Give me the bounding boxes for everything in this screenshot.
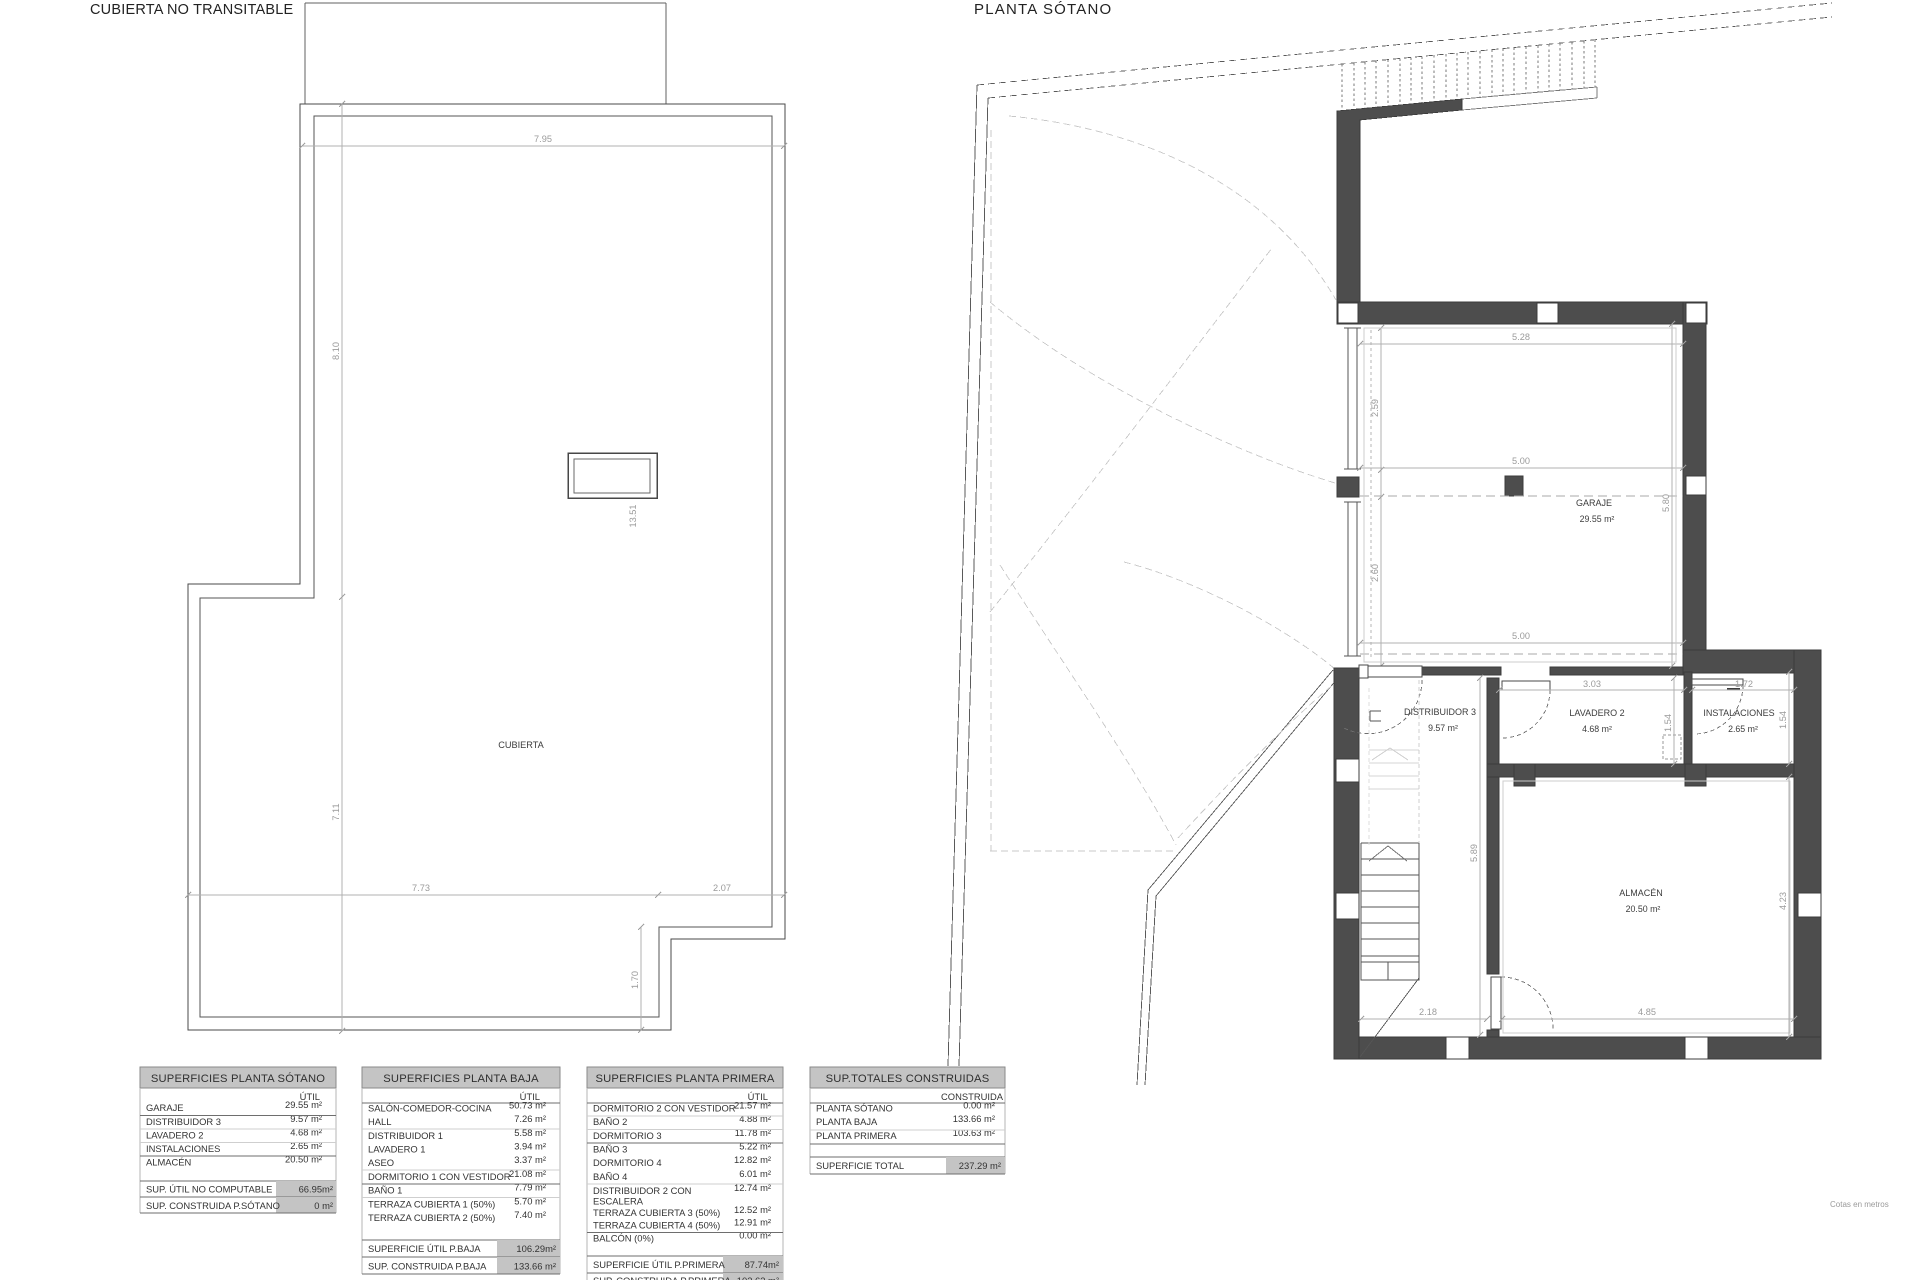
- svg-text:PLANTA SÓTANO: PLANTA SÓTANO: [974, 1, 1112, 18]
- svg-text:LAVADERO 2: LAVADERO 2: [146, 1130, 203, 1141]
- svg-text:7.40 m²: 7.40 m²: [514, 1209, 546, 1220]
- svg-text:7.79 m²: 7.79 m²: [514, 1182, 546, 1193]
- svg-text:87.74m²: 87.74m²: [745, 1259, 779, 1270]
- svg-text:GARAJE: GARAJE: [146, 1102, 184, 1113]
- svg-text:5.28: 5.28: [1512, 332, 1530, 342]
- svg-text:SUP.TOTALES CONSTRUIDAS: SUP.TOTALES CONSTRUIDAS: [826, 1073, 990, 1085]
- svg-text:SUPERFICIE ÚTIL P.PRIMERA: SUPERFICIE ÚTIL P.PRIMERA: [593, 1259, 726, 1270]
- svg-text:7.11: 7.11: [331, 803, 341, 820]
- svg-text:BAÑO 1: BAÑO 1: [368, 1185, 402, 1196]
- svg-text:SUPERFICIE TOTAL: SUPERFICIE TOTAL: [816, 1160, 904, 1171]
- svg-text:29.55 m²: 29.55 m²: [285, 1099, 322, 1110]
- svg-text:INSTALACIONES: INSTALACIONES: [1703, 708, 1774, 718]
- svg-text:29.55 m²: 29.55 m²: [1580, 514, 1615, 524]
- svg-text:0.00 m²: 0.00 m²: [739, 1230, 771, 1241]
- svg-text:2.60: 2.60: [1370, 564, 1380, 582]
- svg-text:ALMACÉN: ALMACÉN: [1619, 888, 1663, 898]
- svg-text:SUP. CONSTRUIDA P.PRIMERA: SUP. CONSTRUIDA P.PRIMERA: [593, 1275, 731, 1280]
- svg-text:3.94 m²: 3.94 m²: [514, 1141, 546, 1152]
- svg-text:SALÓN-COMEDOR-COCINA: SALÓN-COMEDOR-COCINA: [368, 1103, 492, 1114]
- svg-text:DISTRIBUIDOR 1: DISTRIBUIDOR 1: [368, 1130, 443, 1141]
- svg-text:3.03: 3.03: [1583, 679, 1601, 689]
- svg-text:12.52 m²: 12.52 m²: [734, 1204, 771, 1215]
- svg-text:1.72: 1.72: [1735, 679, 1753, 689]
- svg-text:21.57 m²: 21.57 m²: [734, 1100, 771, 1111]
- svg-text:BAÑO 4: BAÑO 4: [593, 1171, 627, 1182]
- svg-text:HALL: HALL: [368, 1116, 391, 1127]
- svg-text:PLANTA PRIMERA: PLANTA PRIMERA: [816, 1130, 897, 1141]
- svg-text:5.80: 5.80: [1661, 494, 1671, 512]
- svg-text:SUP. ÚTIL NO COMPUTABLE: SUP. ÚTIL NO COMPUTABLE: [146, 1184, 272, 1195]
- svg-text:SUPERFICIES PLANTA PRIMERA: SUPERFICIES PLANTA PRIMERA: [595, 1073, 774, 1085]
- svg-text:103.63 m²: 103.63 m²: [737, 1275, 779, 1280]
- svg-text:BAÑO 3: BAÑO 3: [593, 1144, 627, 1155]
- svg-text:133.66 m²: 133.66 m²: [953, 1113, 995, 1124]
- svg-text:LAVADERO 1: LAVADERO 1: [368, 1144, 425, 1155]
- svg-text:TERRAZA CUBIERTA 2 (50%): TERRAZA CUBIERTA 2 (50%): [368, 1212, 495, 1223]
- svg-text:SUP. CONSTRUIDA P.BAJA: SUP. CONSTRUIDA P.BAJA: [368, 1261, 487, 1272]
- svg-text:DISTRIBUIDOR 3: DISTRIBUIDOR 3: [146, 1116, 221, 1127]
- svg-text:66.95m²: 66.95m²: [299, 1184, 333, 1195]
- svg-text:2.65 m²: 2.65 m²: [290, 1140, 322, 1151]
- svg-text:4.85: 4.85: [1638, 1007, 1656, 1017]
- svg-text:SUPERFICIES PLANTA SÓTANO: SUPERFICIES PLANTA SÓTANO: [151, 1072, 325, 1085]
- svg-text:Cotas en metros: Cotas en metros: [1830, 1200, 1889, 1209]
- svg-text:TERRAZA CUBIERTA 4 (50%): TERRAZA CUBIERTA 4 (50%): [593, 1220, 720, 1231]
- svg-text:GARAJE: GARAJE: [1576, 498, 1612, 508]
- svg-text:LAVADERO 2: LAVADERO 2: [1569, 708, 1624, 718]
- svg-text:PLANTA SÓTANO: PLANTA SÓTANO: [816, 1103, 893, 1114]
- svg-text:INSTALACIONES: INSTALACIONES: [146, 1143, 220, 1154]
- svg-text:3.37 m²: 3.37 m²: [514, 1154, 546, 1165]
- svg-text:12.91 m²: 12.91 m²: [734, 1217, 771, 1228]
- svg-text:1.70: 1.70: [630, 971, 640, 989]
- svg-text:133.66 m²: 133.66 m²: [514, 1261, 556, 1272]
- svg-text:5.00: 5.00: [1512, 631, 1530, 641]
- svg-text:50.73 m²: 50.73 m²: [509, 1100, 546, 1111]
- svg-text:20.50 m²: 20.50 m²: [1626, 904, 1661, 914]
- svg-text:ESCALERA: ESCALERA: [593, 1196, 644, 1207]
- svg-text:103.63 m²: 103.63 m²: [953, 1127, 995, 1138]
- svg-text:8.10: 8.10: [331, 342, 341, 360]
- svg-text:9.57 m²: 9.57 m²: [1428, 723, 1458, 733]
- svg-text:DORMITORIO 1 CON VESTIDOR: DORMITORIO 1 CON VESTIDOR: [368, 1171, 511, 1182]
- svg-text:9.57 m²: 9.57 m²: [290, 1113, 322, 1124]
- svg-text:20.50 m²: 20.50 m²: [285, 1154, 322, 1165]
- svg-text:106.29m²: 106.29m²: [516, 1243, 556, 1254]
- svg-text:6.01 m²: 6.01 m²: [739, 1168, 771, 1179]
- svg-text:1.54: 1.54: [1663, 714, 1673, 732]
- svg-text:SUPERFICIES PLANTA BAJA: SUPERFICIES PLANTA BAJA: [383, 1073, 539, 1085]
- svg-text:DORMITORIO 4: DORMITORIO 4: [593, 1157, 662, 1168]
- svg-text:4.68 m²: 4.68 m²: [290, 1127, 322, 1138]
- svg-text:DORMITORIO 2 CON VESTIDOR: DORMITORIO 2 CON VESTIDOR: [593, 1103, 736, 1114]
- svg-text:4.88 m²: 4.88 m²: [739, 1113, 771, 1124]
- svg-text:2.07: 2.07: [713, 883, 731, 893]
- svg-text:12.82 m²: 12.82 m²: [734, 1154, 771, 1165]
- svg-text:CUBIERTA: CUBIERTA: [498, 740, 544, 750]
- svg-text:PLANTA BAJA: PLANTA BAJA: [816, 1116, 878, 1127]
- svg-text:DORMITORIO 3: DORMITORIO 3: [593, 1130, 662, 1141]
- svg-text:237.29 m²: 237.29 m²: [959, 1160, 1001, 1171]
- svg-text:7.26 m²: 7.26 m²: [514, 1113, 546, 1124]
- svg-text:SUPERFICIE ÚTIL P.BAJA: SUPERFICIE ÚTIL P.BAJA: [368, 1243, 481, 1254]
- svg-text:2.65 m²: 2.65 m²: [1728, 724, 1758, 734]
- svg-text:11.78 m²: 11.78 m²: [735, 1127, 771, 1138]
- svg-text:0.00 m²: 0.00 m²: [963, 1100, 995, 1111]
- svg-text:TERRAZA CUBIERTA 1 (50%): TERRAZA CUBIERTA 1 (50%): [368, 1199, 495, 1210]
- svg-text:1.54: 1.54: [1778, 711, 1788, 729]
- svg-text:7.73: 7.73: [412, 883, 430, 893]
- svg-text:DISTRIBUIDOR 2 CON: DISTRIBUIDOR 2 CON: [593, 1185, 691, 1196]
- svg-text:5.89: 5.89: [1469, 844, 1479, 862]
- svg-text:DISTRIBUIDOR 3: DISTRIBUIDOR 3: [1404, 707, 1476, 717]
- svg-text:CUBIERTA NO TRANSITABLE: CUBIERTA NO TRANSITABLE: [90, 2, 293, 18]
- svg-text:5.22 m²: 5.22 m²: [739, 1141, 771, 1152]
- svg-text:4.23: 4.23: [1778, 892, 1788, 910]
- svg-text:ASEO: ASEO: [368, 1157, 394, 1168]
- svg-text:BALCÓN (0%): BALCÓN (0%): [593, 1233, 654, 1244]
- svg-text:7.95: 7.95: [534, 134, 552, 144]
- svg-text:13.51: 13.51: [628, 505, 638, 528]
- svg-text:SUP. CONSTRUIDA P.SÓTANO: SUP. CONSTRUIDA P.SÓTANO: [146, 1200, 280, 1211]
- svg-text:0 m²: 0 m²: [314, 1200, 333, 1211]
- svg-text:BAÑO 2: BAÑO 2: [593, 1116, 627, 1127]
- svg-text:2.18: 2.18: [1419, 1007, 1437, 1017]
- svg-text:4.68 m²: 4.68 m²: [1582, 724, 1612, 734]
- svg-text:TERRAZA CUBIERTA 3 (50%): TERRAZA CUBIERTA 3 (50%): [593, 1207, 720, 1218]
- svg-text:2.59: 2.59: [1370, 399, 1380, 417]
- svg-text:ALMACÉN: ALMACÉN: [146, 1157, 191, 1168]
- svg-text:5.00: 5.00: [1512, 456, 1530, 466]
